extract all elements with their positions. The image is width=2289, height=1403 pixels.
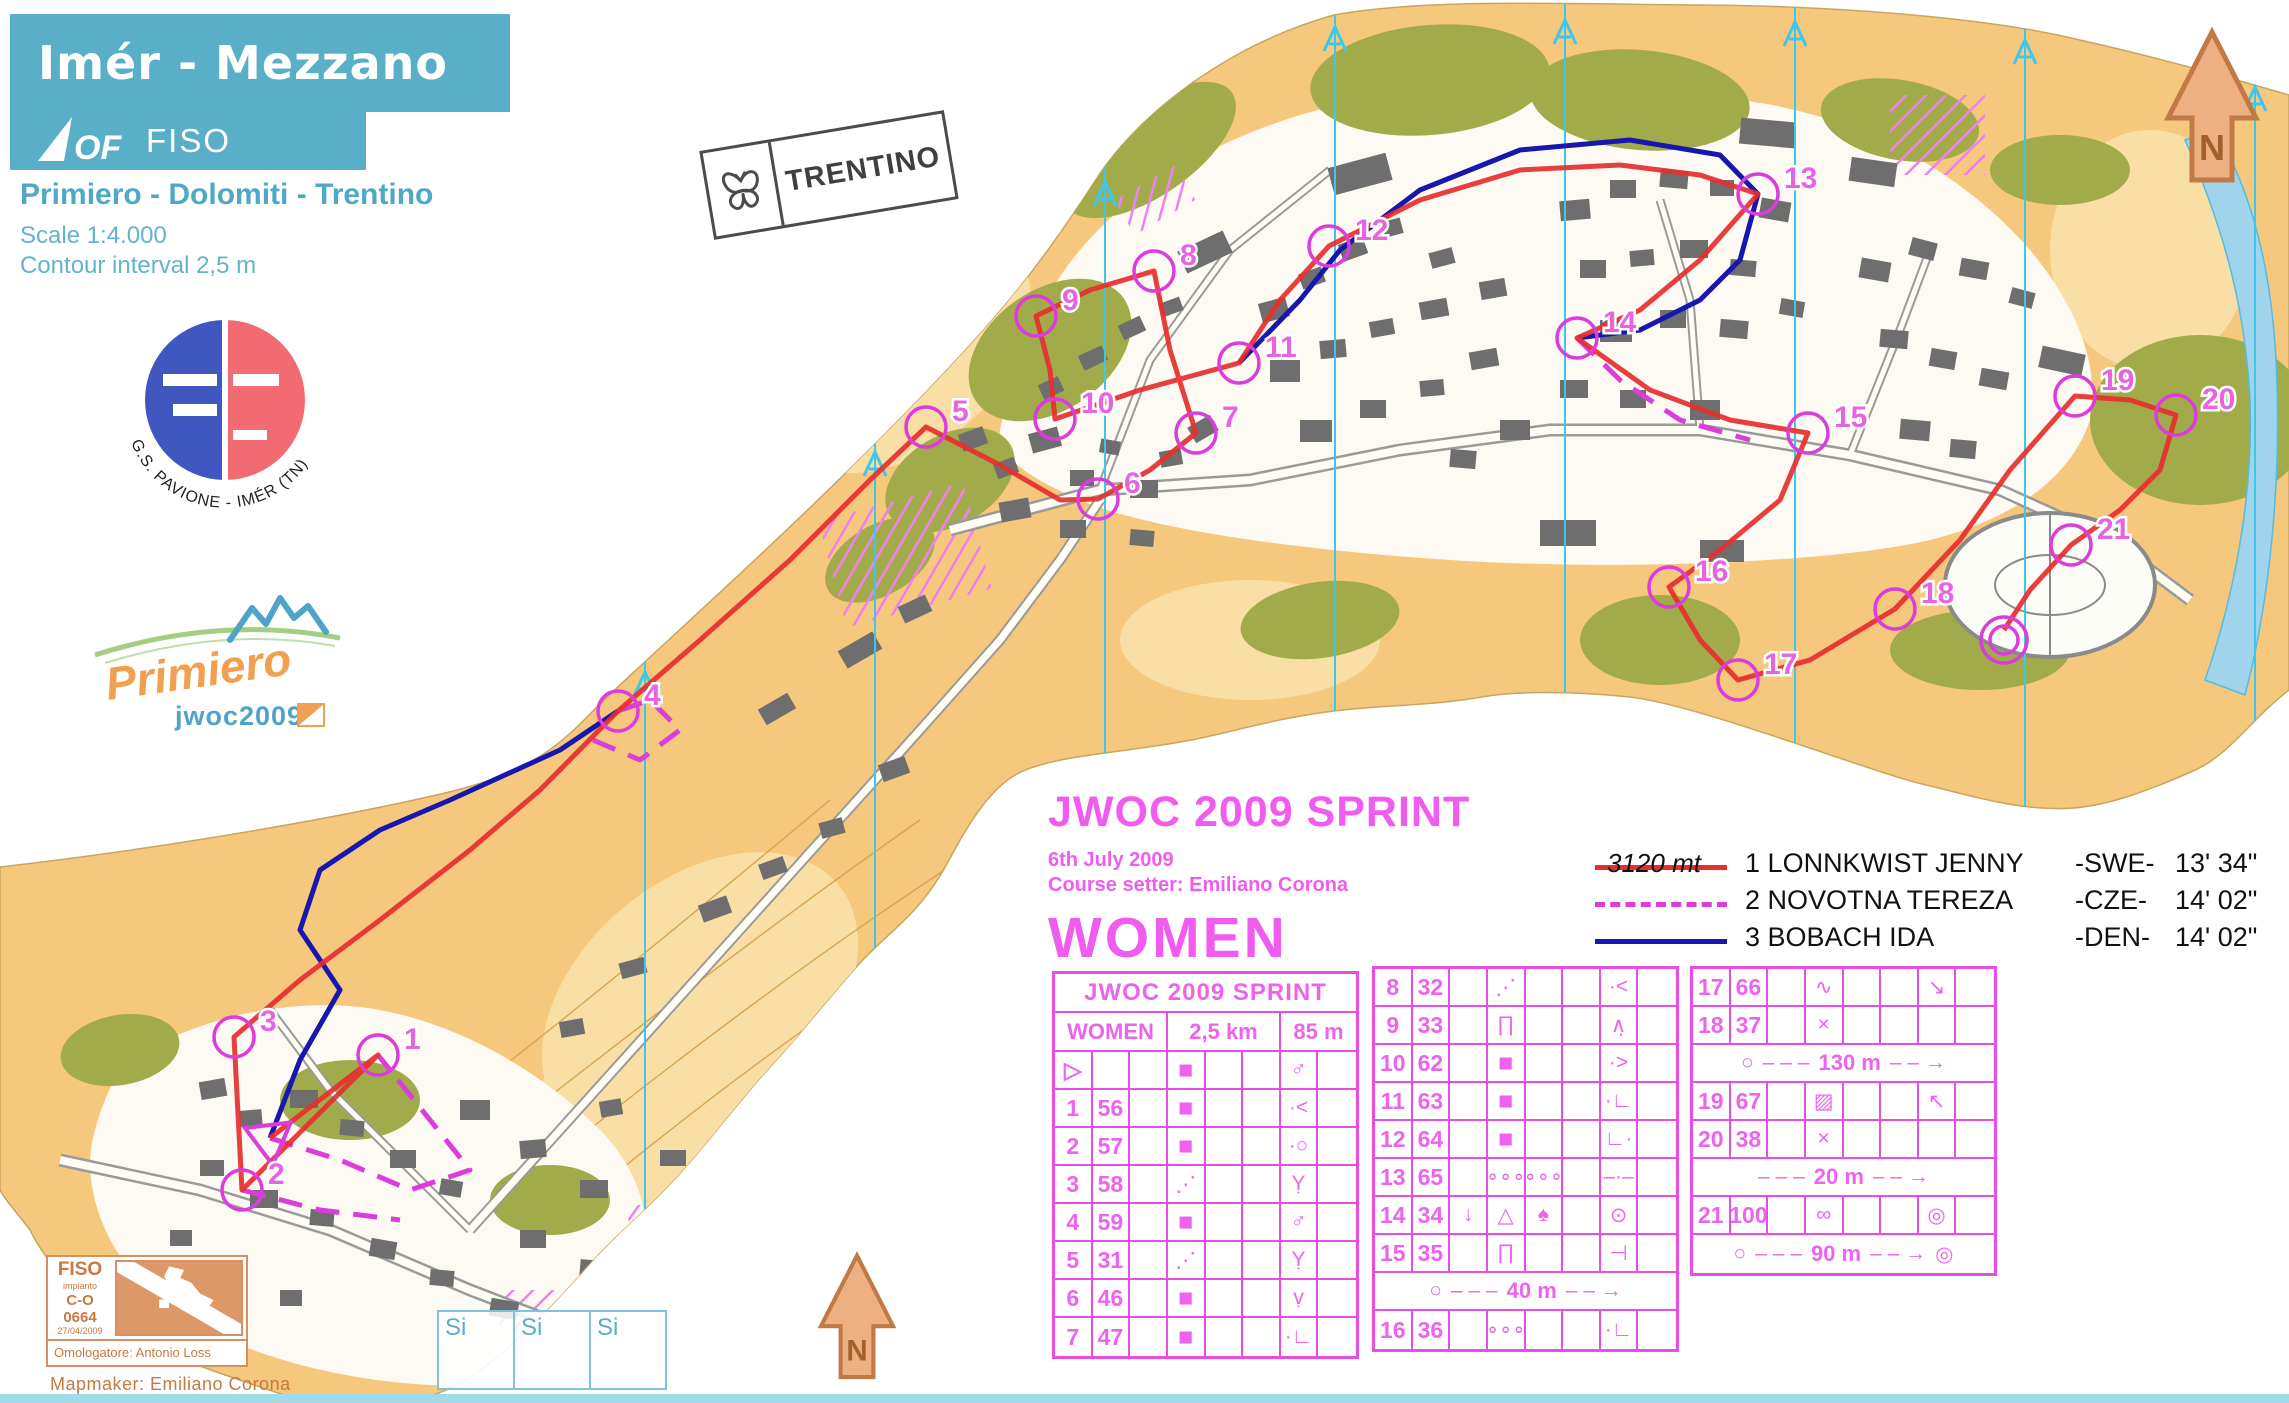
control-cell: [1638, 1197, 1676, 1233]
runner-name: NOVOTNA TEREZA: [1768, 885, 2014, 915]
control-cell: [1768, 1007, 1806, 1043]
control-cell: 56: [1093, 1090, 1131, 1126]
control-row: 1163■·∟: [1375, 1083, 1676, 1121]
control-number: 16: [1695, 555, 1728, 588]
control-cell: 57: [1093, 1128, 1131, 1164]
bottom-edge-bar: [0, 1394, 2289, 1403]
control-cell: [1638, 969, 1676, 1005]
control-cell: [1243, 1242, 1281, 1278]
control-number: 2: [268, 1158, 285, 1191]
jwoc2009-label: jwoc2009: [174, 701, 303, 731]
event-date: 6th July 2009: [1048, 849, 1470, 872]
legend-row: 3 BOBACH IDA -DEN- 14' 02": [1595, 919, 2289, 956]
control-cell: [1206, 1052, 1244, 1088]
control-cell: [1526, 969, 1564, 1005]
control-cell: [1956, 1121, 1994, 1157]
map-scale: Scale 1:4.000: [20, 222, 167, 250]
results-legend: 3120 mt 1 LONNKWIST JENNY -SWE- 13' 34" …: [1595, 845, 2289, 956]
club-logo-gs-pavione: G.S. PAVIONE - IMÉR (TN): [127, 318, 311, 512]
control-cell: 12: [1375, 1121, 1413, 1157]
control-row: 747■·∟: [1055, 1318, 1356, 1356]
control-cell: [1768, 1083, 1806, 1119]
control-row: 1365∘∘∘∘∘∘–·–: [1375, 1159, 1676, 1197]
control-number: 21: [2097, 513, 2130, 546]
control-cell: ▷: [1055, 1052, 1093, 1088]
runner-country: -SWE-: [2075, 848, 2175, 879]
distance-row: ○– – –90 m– – →◎: [1693, 1235, 1994, 1273]
control-cell: [1526, 1045, 1564, 1081]
control-cell: 20: [1693, 1121, 1731, 1157]
rank: 1: [1745, 848, 1760, 878]
control-cell: 8: [1375, 969, 1413, 1005]
control-cell: [1318, 1052, 1356, 1088]
control-cell: ∞: [1806, 1197, 1844, 1233]
control-cell: ■: [1168, 1318, 1206, 1356]
control-cell: 2: [1055, 1128, 1093, 1164]
control-number: 19: [2101, 364, 2134, 397]
control-cell: [1130, 1166, 1168, 1202]
control-cell: ■: [1488, 1083, 1526, 1119]
control-descriptions-right: 1766∿↘1837×○– – –130 m– – →1967▨↖2038×– …: [1690, 966, 1997, 1276]
control-cell: ↖: [1919, 1083, 1957, 1119]
control-cell: [1243, 1052, 1281, 1088]
control-cell: [1093, 1052, 1131, 1088]
control-cell: 4: [1055, 1204, 1093, 1240]
control-cell: 17: [1693, 969, 1731, 1005]
italy-map-icon: [115, 1260, 243, 1336]
control-row: 646■ṿ: [1055, 1280, 1356, 1318]
control-cell: ·<: [1281, 1090, 1319, 1126]
control-row: 531⋰Ỵ: [1055, 1242, 1356, 1280]
control-cell: [1563, 1045, 1601, 1081]
control-number: 7: [1222, 401, 1239, 434]
control-cell: [1881, 1007, 1919, 1043]
control-cell: ▨: [1806, 1083, 1844, 1119]
control-cell: ·∟: [1601, 1083, 1639, 1119]
control-cell: [1563, 969, 1601, 1005]
iof-logo-text: OF: [74, 129, 122, 167]
runner-name: LONNKWIST JENNY: [1768, 848, 2024, 878]
control-cell: [1206, 1128, 1244, 1164]
north-arrow-bottom: N: [821, 1256, 893, 1377]
iof-logo: OF: [36, 115, 128, 167]
control-cell: [1844, 1121, 1882, 1157]
control-cell: 5: [1055, 1242, 1093, 1278]
control-row: 1264■∟·: [1375, 1121, 1676, 1159]
control-cell: 62: [1413, 1045, 1451, 1081]
control-cell: [1206, 1242, 1244, 1278]
control-cell: [1844, 1007, 1882, 1043]
control-cell: 38: [1731, 1121, 1769, 1157]
control-cell: [1450, 1235, 1488, 1271]
control-cell: ·<: [1601, 969, 1639, 1005]
control-cell: ·∟: [1281, 1318, 1319, 1356]
mapmaker-credit: Mapmaker: Emiliano Corona: [50, 1374, 291, 1395]
control-cell: [1243, 1166, 1281, 1202]
card-rows: ▷■♂156■·<257■·○358⋰Ỵ459■♂531⋰Ỵ646■ṿ74…: [1055, 1052, 1356, 1356]
control-descriptions-main: JWOC 2009 SPRINT WOMEN 2,5 km 85 m ▷■♂15…: [1052, 971, 1359, 1359]
control-cell: [1318, 1090, 1356, 1126]
control-cell: [1130, 1204, 1168, 1240]
control-cell: [1206, 1090, 1244, 1126]
control-cell: ♂: [1281, 1204, 1319, 1240]
control-cell: [1130, 1128, 1168, 1164]
control-cell: 3: [1055, 1166, 1093, 1202]
control-cell: 1: [1055, 1090, 1093, 1126]
control-cell: ⊙: [1601, 1197, 1639, 1233]
control-row: 832⋰·<: [1375, 969, 1676, 1007]
control-cell: ♠: [1526, 1197, 1564, 1233]
control-cell: [1563, 1159, 1601, 1195]
control-cell: [1450, 1083, 1488, 1119]
control-cell: ∟·: [1601, 1121, 1639, 1157]
control-cell: [1844, 1197, 1882, 1233]
control-cell: 47: [1093, 1318, 1131, 1356]
control-cell: [1638, 1121, 1676, 1157]
si-cell: Si: [589, 1310, 667, 1390]
control-cell: ⊣: [1601, 1235, 1639, 1271]
control-cell: 6: [1055, 1280, 1093, 1316]
control-cell: ■: [1168, 1052, 1206, 1088]
control-cell: 18: [1693, 1007, 1731, 1043]
control-row: 1967▨↖: [1693, 1083, 1994, 1121]
runner-country: -CZE-: [2075, 885, 2175, 916]
control-cell: [1243, 1204, 1281, 1240]
control-number: 11: [1265, 331, 1297, 364]
control-cell: ↘: [1919, 969, 1957, 1005]
control-cell: ∿: [1806, 969, 1844, 1005]
control-cell: [1563, 1197, 1601, 1233]
control-cell: ⋰: [1488, 969, 1526, 1005]
control-cell: [1526, 1311, 1564, 1349]
control-cell: ■: [1168, 1280, 1206, 1316]
card-header: WOMEN 2,5 km 85 m: [1055, 1013, 1356, 1052]
map-title: Imér - Mezzano: [38, 36, 448, 90]
control-cell: ■: [1168, 1128, 1206, 1164]
control-number: 8: [1180, 239, 1197, 272]
si-cell: Si: [513, 1310, 591, 1390]
rank: 2: [1745, 885, 1760, 915]
control-row: 1837×: [1693, 1007, 1994, 1045]
legend-row: 3120 mt 1 LONNKWIST JENNY -SWE- 13' 34": [1595, 845, 2289, 882]
control-cell: 63: [1413, 1083, 1451, 1119]
si-punch-boxes: Si Si Si: [437, 1310, 667, 1390]
control-cell: ↓: [1450, 1197, 1488, 1233]
control-cell: [1563, 1083, 1601, 1119]
control-row: 2038×: [1693, 1121, 1994, 1159]
control-cell: 100: [1731, 1197, 1769, 1233]
distance-row: ○– – –130 m– – →: [1693, 1045, 1994, 1083]
control-cell: [1450, 1159, 1488, 1195]
control-cell: ■: [1488, 1121, 1526, 1157]
control-cell: [1881, 969, 1919, 1005]
fiso-box-sub: impianto: [63, 1281, 97, 1291]
control-cell: ṿ: [1281, 1280, 1319, 1316]
control-cell: 66: [1731, 969, 1769, 1005]
control-row: 257■·○: [1055, 1128, 1356, 1166]
control-cell: 10: [1375, 1045, 1413, 1081]
control-cell: 13: [1375, 1159, 1413, 1195]
control-cell: [1563, 1121, 1601, 1157]
contour-interval: Contour interval 2,5 m: [20, 252, 256, 280]
control-cell: [1844, 1083, 1882, 1119]
control-number: 6: [1124, 467, 1141, 500]
control-cell: 32: [1413, 969, 1451, 1005]
control-cell: [1318, 1280, 1356, 1316]
control-cell: [1526, 1235, 1564, 1271]
control-cell: [1768, 969, 1806, 1005]
control-number: 17: [1764, 648, 1797, 681]
control-cell: ⋰: [1168, 1166, 1206, 1202]
control-cell: [1450, 969, 1488, 1005]
region-subtitle: Primiero - Dolomiti - Trentino: [20, 178, 433, 212]
control-cell: [1956, 1007, 1994, 1043]
control-row: 1636∘∘∘·∟: [1375, 1311, 1676, 1349]
control-number: 1: [404, 1023, 421, 1056]
control-cell: ■: [1168, 1204, 1206, 1240]
control-cell: ∧̣: [1601, 1007, 1639, 1043]
fiso-homologation-box: FISO impianto C-O 0664 27/04/2009 Omolog…: [46, 1255, 248, 1367]
control-cell: [1130, 1242, 1168, 1278]
si-cell: Si: [437, 1310, 515, 1390]
control-cell: [1206, 1166, 1244, 1202]
control-cell: [1919, 1121, 1957, 1157]
control-cell: [1638, 1045, 1676, 1081]
control-cell: [1638, 1235, 1676, 1271]
control-cell: ∏: [1488, 1007, 1526, 1043]
control-cell: [1243, 1090, 1281, 1126]
control-cell: [1881, 1083, 1919, 1119]
control-cell: [1450, 1121, 1488, 1157]
control-cell: [1206, 1318, 1244, 1356]
control-cell: [1243, 1318, 1281, 1356]
runner-name: BOBACH IDA: [1768, 922, 1935, 952]
control-cell: [1450, 1045, 1488, 1081]
control-cell: [1206, 1280, 1244, 1316]
control-cell: –·–: [1601, 1159, 1639, 1195]
control-cell: 36: [1413, 1311, 1451, 1349]
card-category: WOMEN: [1055, 1013, 1168, 1050]
homologator: Omologatore: Antonio Loss: [48, 1339, 246, 1363]
control-cell: [1318, 1128, 1356, 1164]
control-cell: 35: [1413, 1235, 1451, 1271]
runner-time: 13' 34": [2175, 848, 2289, 879]
event-course-setter: Course setter: Emiliano Corona: [1048, 874, 1470, 897]
runner-time: 14' 02": [2175, 885, 2289, 916]
control-cell: [1130, 1052, 1168, 1088]
control-number: 5: [952, 395, 969, 428]
control-cell: △: [1488, 1197, 1526, 1233]
federation-banner: OF FISO: [10, 112, 366, 170]
control-cell: [1956, 969, 1994, 1005]
control-cell: ■: [1168, 1090, 1206, 1126]
control-cell: [1638, 1159, 1676, 1195]
fiso-box-code: C-O: [66, 1292, 94, 1309]
control-cell: ∘∘∘: [1488, 1159, 1526, 1195]
control-row: 459■♂: [1055, 1204, 1356, 1242]
control-row: 1535∏⊣: [1375, 1235, 1676, 1273]
control-cell: [1130, 1090, 1168, 1126]
control-cell: 15: [1375, 1235, 1413, 1271]
control-cell: ■: [1488, 1045, 1526, 1081]
control-number: 14: [1603, 306, 1637, 339]
control-cell: ×: [1806, 1121, 1844, 1157]
distance-row: ○– – –40 m– – →: [1375, 1273, 1676, 1311]
control-cell: ⋰: [1168, 1242, 1206, 1278]
control-cell: [1243, 1280, 1281, 1316]
control-cell: [1844, 969, 1882, 1005]
control-number: 18: [1921, 577, 1954, 610]
control-cell: [1243, 1128, 1281, 1164]
card-title: JWOC 2009 SPRINT: [1055, 974, 1356, 1013]
north-letter: N: [2199, 127, 2225, 168]
control-cell: [1318, 1318, 1356, 1356]
runner-time: 14' 02": [2175, 922, 2289, 953]
control-cell: [1563, 1311, 1601, 1349]
card-rows: 1766∿↘1837×○– – –130 m– – →1967▨↖2038×– …: [1693, 969, 1994, 1273]
control-cell: [1563, 1007, 1601, 1043]
control-number: 12: [1355, 214, 1388, 247]
control-cell: Ỵ: [1281, 1242, 1319, 1278]
event-title: JWOC 2009 SPRINT: [1048, 788, 1470, 837]
control-cell: [1526, 1007, 1564, 1043]
control-cell: [1919, 1007, 1957, 1043]
control-cell: 64: [1413, 1121, 1451, 1157]
control-cell: [1563, 1235, 1601, 1271]
title-banner: Imér - Mezzano: [10, 14, 510, 112]
control-cell: 31: [1093, 1242, 1131, 1278]
control-cell: [1638, 1083, 1676, 1119]
control-number: 10: [1081, 387, 1114, 420]
control-cell: 37: [1731, 1007, 1769, 1043]
control-row: 933∏∧̣: [1375, 1007, 1676, 1045]
fiso-box-number: 0664: [63, 1309, 96, 1326]
control-cell: [1638, 1311, 1676, 1349]
control-cell: [1956, 1083, 1994, 1119]
control-cell: 16: [1375, 1311, 1413, 1349]
course-distance: 3120 mt: [1607, 848, 1701, 879]
card-climb: 85 m: [1281, 1013, 1356, 1050]
control-number: 4: [644, 679, 661, 712]
control-cell: 21: [1693, 1197, 1731, 1233]
control-cell: 33: [1413, 1007, 1451, 1043]
control-cell: ◎: [1919, 1197, 1957, 1233]
control-flag-icon: [298, 704, 324, 726]
orienteering-map-sheet: 123456789101112131415161718192021 N N G.…: [0, 0, 2289, 1403]
control-row: 1062■·>: [1375, 1045, 1676, 1083]
control-cell: [1768, 1121, 1806, 1157]
control-cell: 67: [1731, 1083, 1769, 1119]
control-cell: ♂: [1281, 1052, 1319, 1088]
control-cell: ∘∘∘: [1526, 1159, 1564, 1195]
control-cell: [1526, 1083, 1564, 1119]
control-cell: 59: [1093, 1204, 1131, 1240]
control-cell: 46: [1093, 1280, 1131, 1316]
control-cell: 34: [1413, 1197, 1451, 1233]
control-cell: [1450, 1007, 1488, 1043]
control-cell: [1318, 1204, 1356, 1240]
control-cell: 7: [1055, 1318, 1093, 1356]
control-cell: ×: [1806, 1007, 1844, 1043]
control-row: 156■·<: [1055, 1090, 1356, 1128]
primiero-jwoc-logo: Primiero jwoc2009: [95, 598, 340, 731]
control-cell: ∏: [1488, 1235, 1526, 1271]
control-number: 9: [1062, 284, 1079, 317]
control-cell: 9: [1375, 1007, 1413, 1043]
control-row: 21100∞◎: [1693, 1197, 1994, 1235]
control-cell: [1450, 1311, 1488, 1349]
control-cell: [1130, 1280, 1168, 1316]
card-rows: 832⋰·<933∏∧̣1062■·>1163■·∟1264■∟·1365∘∘∘…: [1375, 969, 1676, 1349]
control-cell: 65: [1413, 1159, 1451, 1195]
control-number: 20: [2202, 383, 2235, 416]
control-row: 358⋰Ỵ: [1055, 1166, 1356, 1204]
control-cell: [1638, 1007, 1676, 1043]
control-cell: [1956, 1197, 1994, 1233]
control-cell: ·∟: [1601, 1311, 1639, 1349]
control-cell: [1318, 1242, 1356, 1278]
control-cell: [1318, 1166, 1356, 1202]
control-cell: [1768, 1197, 1806, 1233]
fiso-box-name: FISO: [58, 1259, 102, 1281]
control-cell: [1526, 1121, 1564, 1157]
control-cell: 11: [1375, 1083, 1413, 1119]
control-cell: ·>: [1601, 1045, 1639, 1081]
fiso-box-date: 27/04/2009: [57, 1326, 102, 1336]
control-number: 15: [1834, 401, 1867, 434]
runner-country: -DEN-: [2075, 922, 2175, 953]
control-descriptions-mid: 832⋰·<933∏∧̣1062■·>1163■·∟1264■∟·1365∘∘∘…: [1372, 966, 1679, 1352]
control-row: 1766∿↘: [1693, 969, 1994, 1007]
legend-row: 2 NOVOTNA TEREZA -CZE- 14' 02": [1595, 882, 2289, 919]
control-cell: 19: [1693, 1083, 1731, 1119]
control-cell: ·○: [1281, 1128, 1319, 1164]
control-cell: [1881, 1121, 1919, 1157]
control-cell: [1206, 1204, 1244, 1240]
rank: 3: [1745, 922, 1760, 952]
control-cell: ∘∘∘: [1488, 1311, 1526, 1349]
control-cell: Ỵ: [1281, 1166, 1319, 1202]
control-cell: 58: [1093, 1166, 1131, 1202]
distance-row: – – –20 m– – →: [1693, 1159, 1994, 1197]
control-number: 3: [260, 1005, 277, 1038]
control-row: 1434↓△♠⊙: [1375, 1197, 1676, 1235]
control-cell: [1130, 1318, 1168, 1356]
card-length: 2,5 km: [1168, 1013, 1281, 1050]
control-cell: [1881, 1197, 1919, 1233]
event-category: WOMEN: [1048, 905, 1470, 971]
control-number: 13: [1784, 162, 1817, 195]
control-row: ▷■♂: [1055, 1052, 1356, 1090]
event-block: JWOC 2009 SPRINT 6th July 2009 Course se…: [1048, 788, 1470, 971]
north-letter: N: [846, 1335, 867, 1368]
control-cell: 14: [1375, 1197, 1413, 1233]
fiso-label: FISO: [146, 122, 231, 160]
